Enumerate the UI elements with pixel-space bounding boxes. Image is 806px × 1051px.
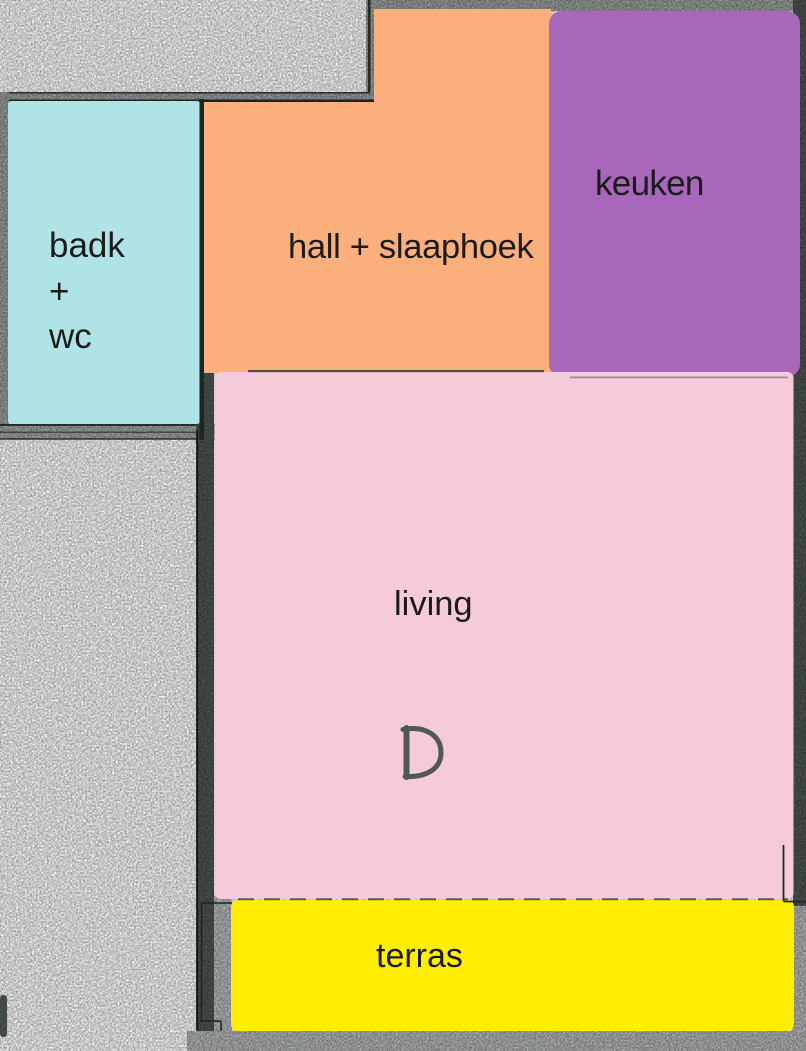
svg-text:keuken: keuken bbox=[595, 164, 704, 203]
svg-text:wc: wc bbox=[48, 317, 92, 356]
svg-text:hall + slaaphoek: hall + slaaphoek bbox=[288, 228, 535, 266]
svg-text:terras: terras bbox=[376, 937, 463, 975]
svg-text:living: living bbox=[394, 585, 473, 623]
svg-text:+: + bbox=[49, 272, 69, 311]
svg-text:badk: badk bbox=[49, 226, 125, 265]
